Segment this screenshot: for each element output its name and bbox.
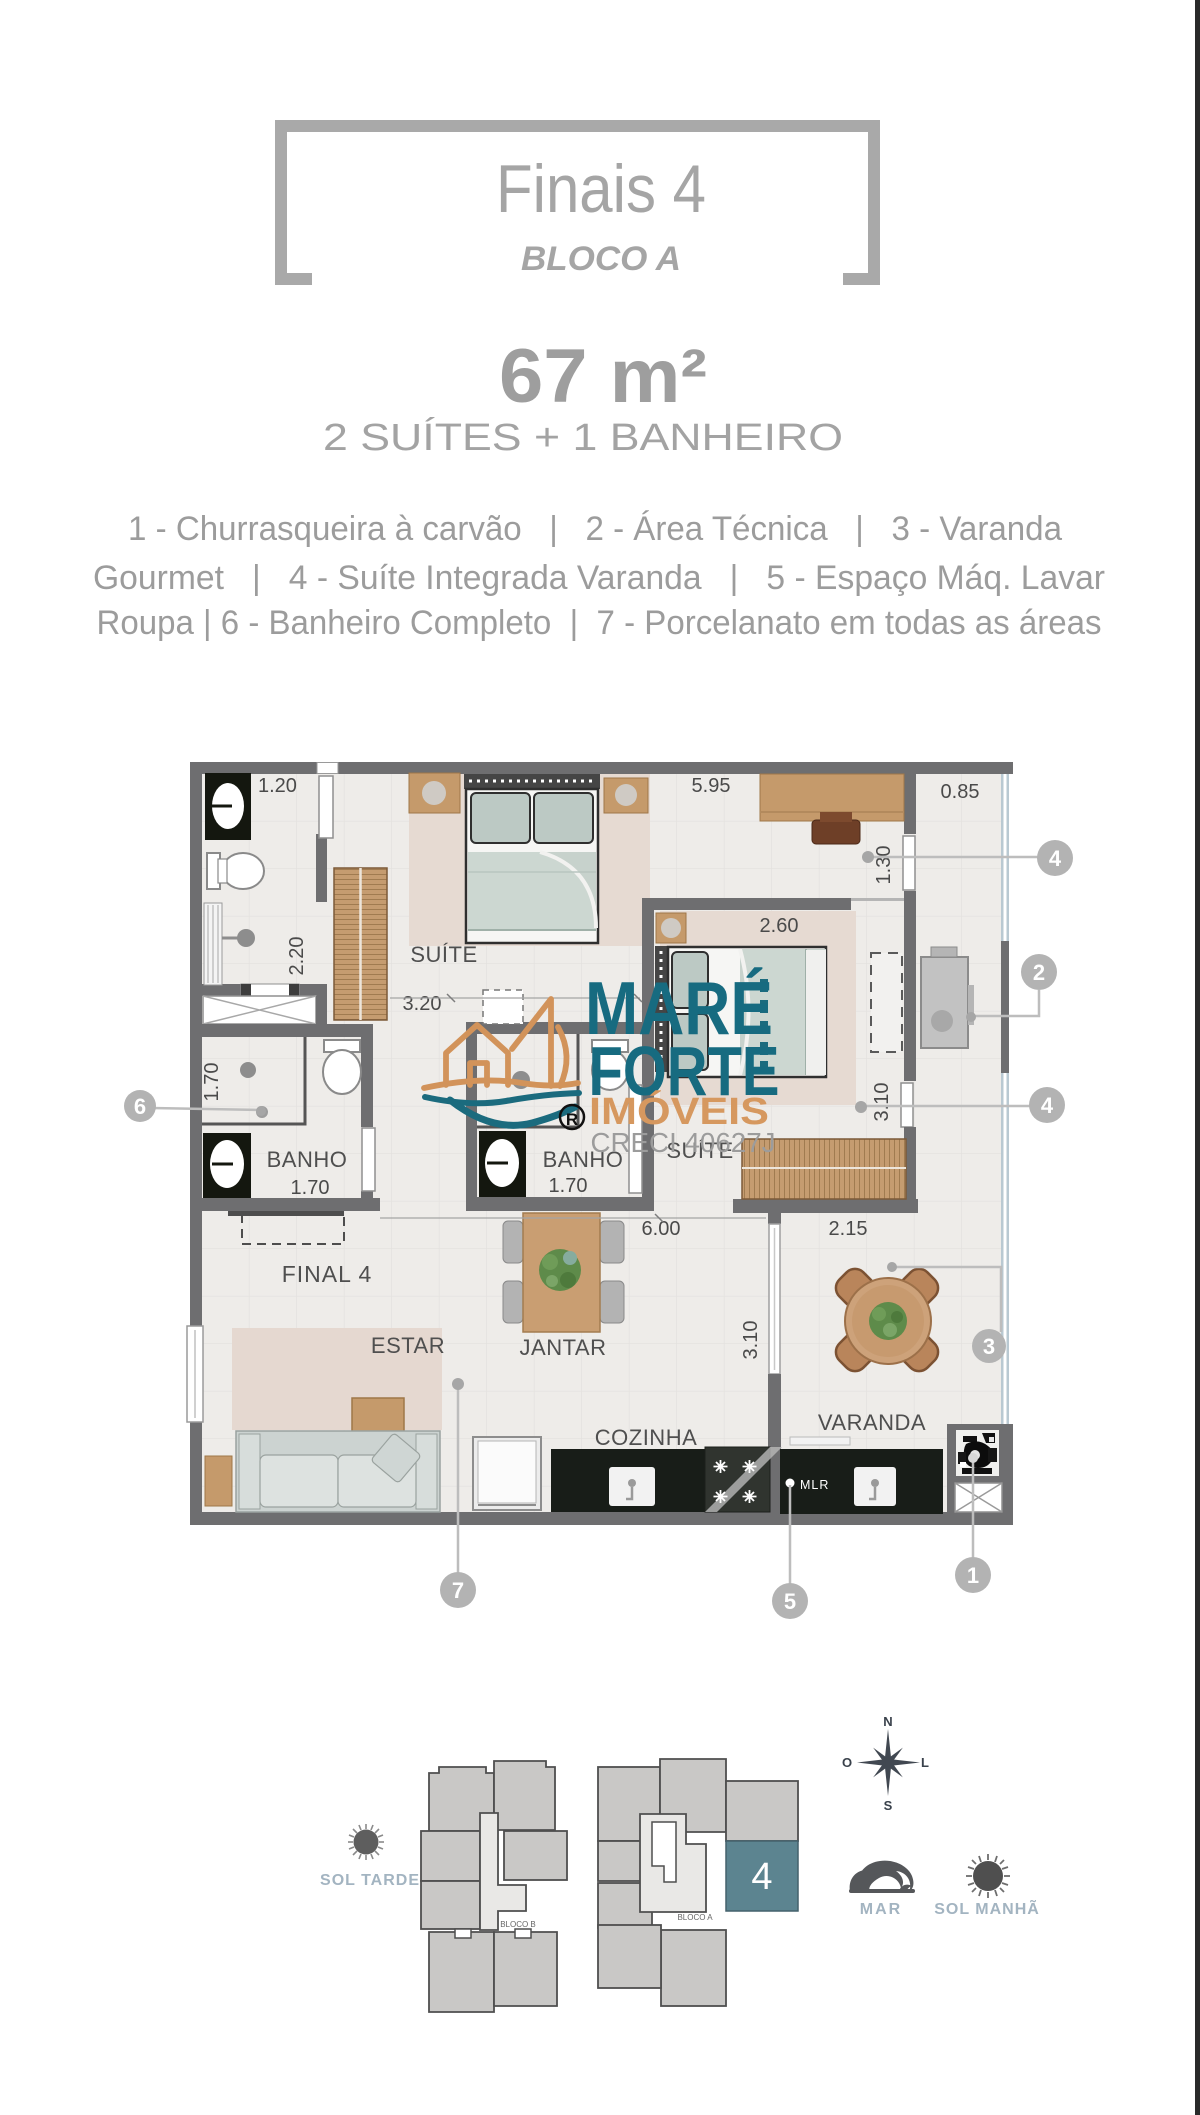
- svg-text:BLOCO B: BLOCO B: [500, 1920, 536, 1929]
- svg-text:0.85: 0.85: [941, 781, 980, 803]
- svg-text:1.20: 1.20: [258, 775, 297, 797]
- svg-text:2.20: 2.20: [286, 937, 308, 976]
- svg-text:COZINHA: COZINHA: [595, 1425, 698, 1450]
- svg-text:4: 4: [751, 1856, 772, 1898]
- svg-text:SOL MANHÃ: SOL MANHÃ: [934, 1898, 1040, 1918]
- svg-text:3.10: 3.10: [871, 1083, 893, 1122]
- svg-text:1.70: 1.70: [201, 1063, 223, 1102]
- svg-text:SUÍTE: SUÍTE: [410, 942, 477, 967]
- svg-text:2.15: 2.15: [829, 1218, 868, 1240]
- svg-text:R: R: [566, 1110, 578, 1129]
- svg-text:SOL TARDE: SOL TARDE: [320, 1872, 420, 1889]
- svg-text:O: O: [842, 1755, 852, 1770]
- svg-text:Finais 4: Finais 4: [496, 151, 706, 227]
- svg-text:6: 6: [134, 1094, 146, 1119]
- svg-text:N: N: [883, 1714, 892, 1729]
- svg-text:L: L: [921, 1755, 929, 1770]
- svg-text:S: S: [884, 1798, 893, 1813]
- svg-text:3.10: 3.10: [740, 1321, 762, 1360]
- svg-text:4: 4: [1049, 846, 1062, 871]
- svg-text:2: 2: [1033, 960, 1045, 985]
- svg-text:ESTAR: ESTAR: [371, 1333, 445, 1358]
- svg-text:2.60: 2.60: [760, 915, 799, 937]
- svg-text:Roupa | 6 - Banheiro Completo: Roupa | 6 - Banheiro Completo | 7 - Porc…: [97, 604, 1102, 642]
- svg-text:1: 1: [967, 1563, 979, 1588]
- svg-text:5.95: 5.95: [692, 775, 731, 797]
- svg-text:Gourmet | 4 - Suíte Integr: Gourmet | 4 - Suíte Integrada Varanda | …: [93, 559, 1105, 597]
- svg-text:BANHO: BANHO: [267, 1147, 348, 1172]
- svg-text:1.70: 1.70: [291, 1177, 330, 1199]
- svg-text:BLOCO A: BLOCO A: [521, 240, 681, 278]
- svg-text:VARANDA: VARANDA: [818, 1410, 926, 1435]
- svg-text:4: 4: [1041, 1093, 1054, 1118]
- svg-text:3: 3: [983, 1334, 995, 1359]
- svg-text:FINAL 4: FINAL 4: [282, 1261, 373, 1287]
- svg-text:67 m²: 67 m²: [499, 334, 707, 419]
- svg-text:1.70: 1.70: [549, 1175, 588, 1197]
- svg-text:1 - Churrasqueira à carvão |: 1 - Churrasqueira à carvão | 2 - Área Té…: [128, 510, 1062, 548]
- svg-text:MLR: MLR: [800, 1478, 829, 1492]
- svg-text:5: 5: [784, 1589, 796, 1614]
- svg-text:6.00: 6.00: [642, 1218, 681, 1240]
- svg-text:MAR: MAR: [860, 1901, 902, 1918]
- svg-text:7: 7: [452, 1578, 464, 1603]
- svg-text:2 SUÍTES + 1 BANHEIRO: 2 SUÍTES + 1 BANHEIRO: [323, 416, 843, 459]
- svg-text:BLOCO A: BLOCO A: [677, 1913, 713, 1922]
- svg-text:3.20: 3.20: [403, 993, 442, 1015]
- svg-text:1.30: 1.30: [873, 846, 895, 885]
- svg-text:CRECI 40627J: CRECI 40627J: [591, 1127, 776, 1158]
- svg-text:JANTAR: JANTAR: [520, 1335, 607, 1360]
